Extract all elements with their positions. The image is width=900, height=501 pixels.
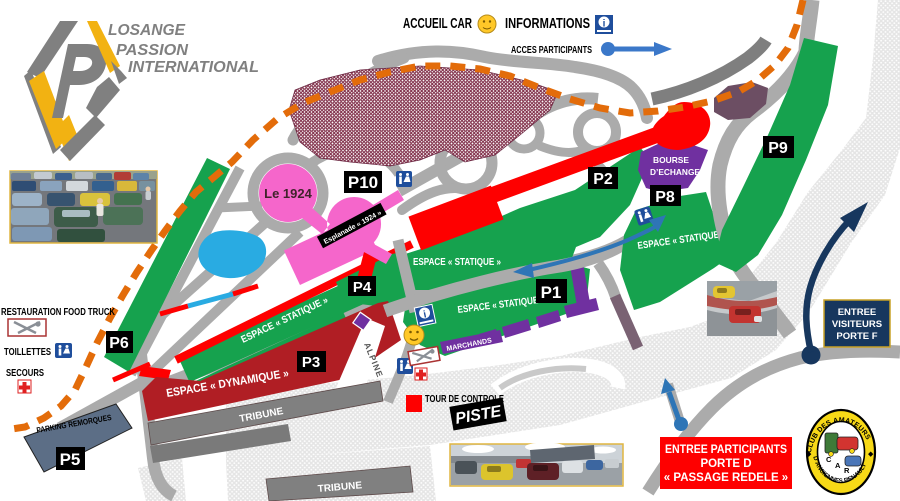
svg-text:R: R [844,466,850,475]
svg-text:◆: ◆ [868,451,874,458]
svg-text:ESPACE « STATIQUE »: ESPACE « STATIQUE » [413,257,501,268]
svg-text:P2: P2 [593,171,613,188]
svg-text:P8: P8 [655,189,675,206]
svg-text:P5: P5 [60,450,81,469]
svg-text:LOSANGE: LOSANGE [108,22,186,39]
svg-text:ENTREE PARTICIPANTS: ENTREE PARTICIPANTS [665,444,787,456]
svg-text:BOURSE: BOURSE [653,155,689,165]
svg-text:TOILLETTES: TOILLETTES [4,347,51,358]
svg-text:P9: P9 [768,140,788,157]
svg-text:RESTAURATION FOOD TRUCK: RESTAURATION FOOD TRUCK [1,307,116,318]
svg-text:« PASSAGE REDELE »: « PASSAGE REDELE » [664,472,788,484]
svg-text:INFORMATIONS: INFORMATIONS [505,16,590,32]
svg-text:C: C [826,455,832,464]
svg-text:A: A [835,461,841,470]
svg-text:P1: P1 [541,283,562,302]
svg-text:TOUR DE CONTROLE: TOUR DE CONTROLE [425,394,504,405]
svg-text:P4: P4 [353,279,372,296]
svg-text:P10: P10 [348,173,378,192]
svg-text:INTERNATIONAL: INTERNATIONAL [128,59,259,76]
svg-text:PORTE D: PORTE D [700,458,751,470]
svg-text:ENTREE: ENTREE [838,307,877,318]
svg-text:Le 1924: Le 1924 [264,186,312,201]
svg-text:PASSION: PASSION [116,42,189,59]
svg-text:P3: P3 [302,354,320,371]
svg-text:PORTE F: PORTE F [836,331,877,342]
svg-text:ACCES PARTICIPANTS: ACCES PARTICIPANTS [511,45,592,56]
svg-text:ACCUEIL CAR: ACCUEIL CAR [403,16,472,32]
svg-text:i: i [603,19,606,30]
svg-text:SECOURS: SECOURS [6,368,44,379]
svg-text:D’ECHANGE: D’ECHANGE [650,167,700,177]
svg-text:◆: ◆ [806,451,812,458]
svg-text:VISITEURS: VISITEURS [832,319,882,330]
svg-text:P6: P6 [109,335,129,352]
